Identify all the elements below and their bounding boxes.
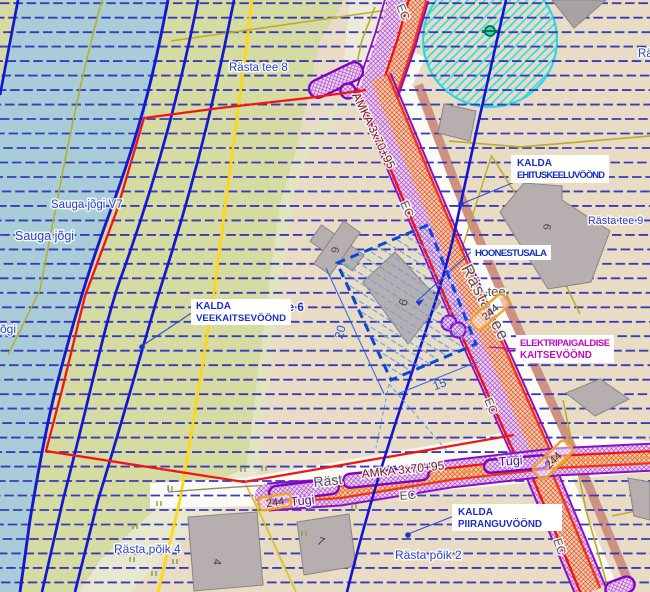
svg-text:EHITUSKEELUVÖÖND: EHITUSKEELUVÖÖND xyxy=(517,169,605,180)
svg-text:VEEKAITSEVÖÖND: VEEKAITSEVÖÖND xyxy=(196,313,286,324)
svg-text:KALDA: KALDA xyxy=(196,301,231,312)
svg-text:KAITSEVÖÖND: KAITSEVÖÖND xyxy=(520,350,592,361)
svg-text:KALDA: KALDA xyxy=(517,158,552,169)
svg-text:EC: EC xyxy=(399,488,417,503)
svg-text:Rästa: Rästa xyxy=(638,48,650,60)
svg-text:Räst: Räst xyxy=(313,471,343,490)
svg-text:Tugi: Tugi xyxy=(290,493,315,509)
svg-text:Rästa tee 8: Rästa tee 8 xyxy=(229,62,288,74)
svg-text:Rästa põik 2: Rästa põik 2 xyxy=(395,548,462,562)
svg-text:Sauga jõgi V7: Sauga jõgi V7 xyxy=(51,199,123,211)
svg-text:Rästa põik 4: Rästa põik 4 xyxy=(114,542,181,556)
svg-text:Sauga jõgi: Sauga jõgi xyxy=(15,229,74,243)
svg-text:PIIRANGUVÖÖND: PIIRANGUVÖÖND xyxy=(458,519,542,530)
svg-text:4: 4 xyxy=(210,558,222,565)
svg-text:Rästa tee 9: Rästa tee 9 xyxy=(588,215,643,227)
svg-text:KALDA: KALDA xyxy=(458,507,493,518)
svg-text:õgi: õgi xyxy=(0,322,16,336)
svg-text:Tugi: Tugi xyxy=(498,453,523,469)
svg-text:HOONESTUSALA: HOONESTUSALA xyxy=(475,248,547,259)
svg-text:ELEKTRIPAIGALDISE: ELEKTRIPAIGALDISE xyxy=(520,337,610,348)
